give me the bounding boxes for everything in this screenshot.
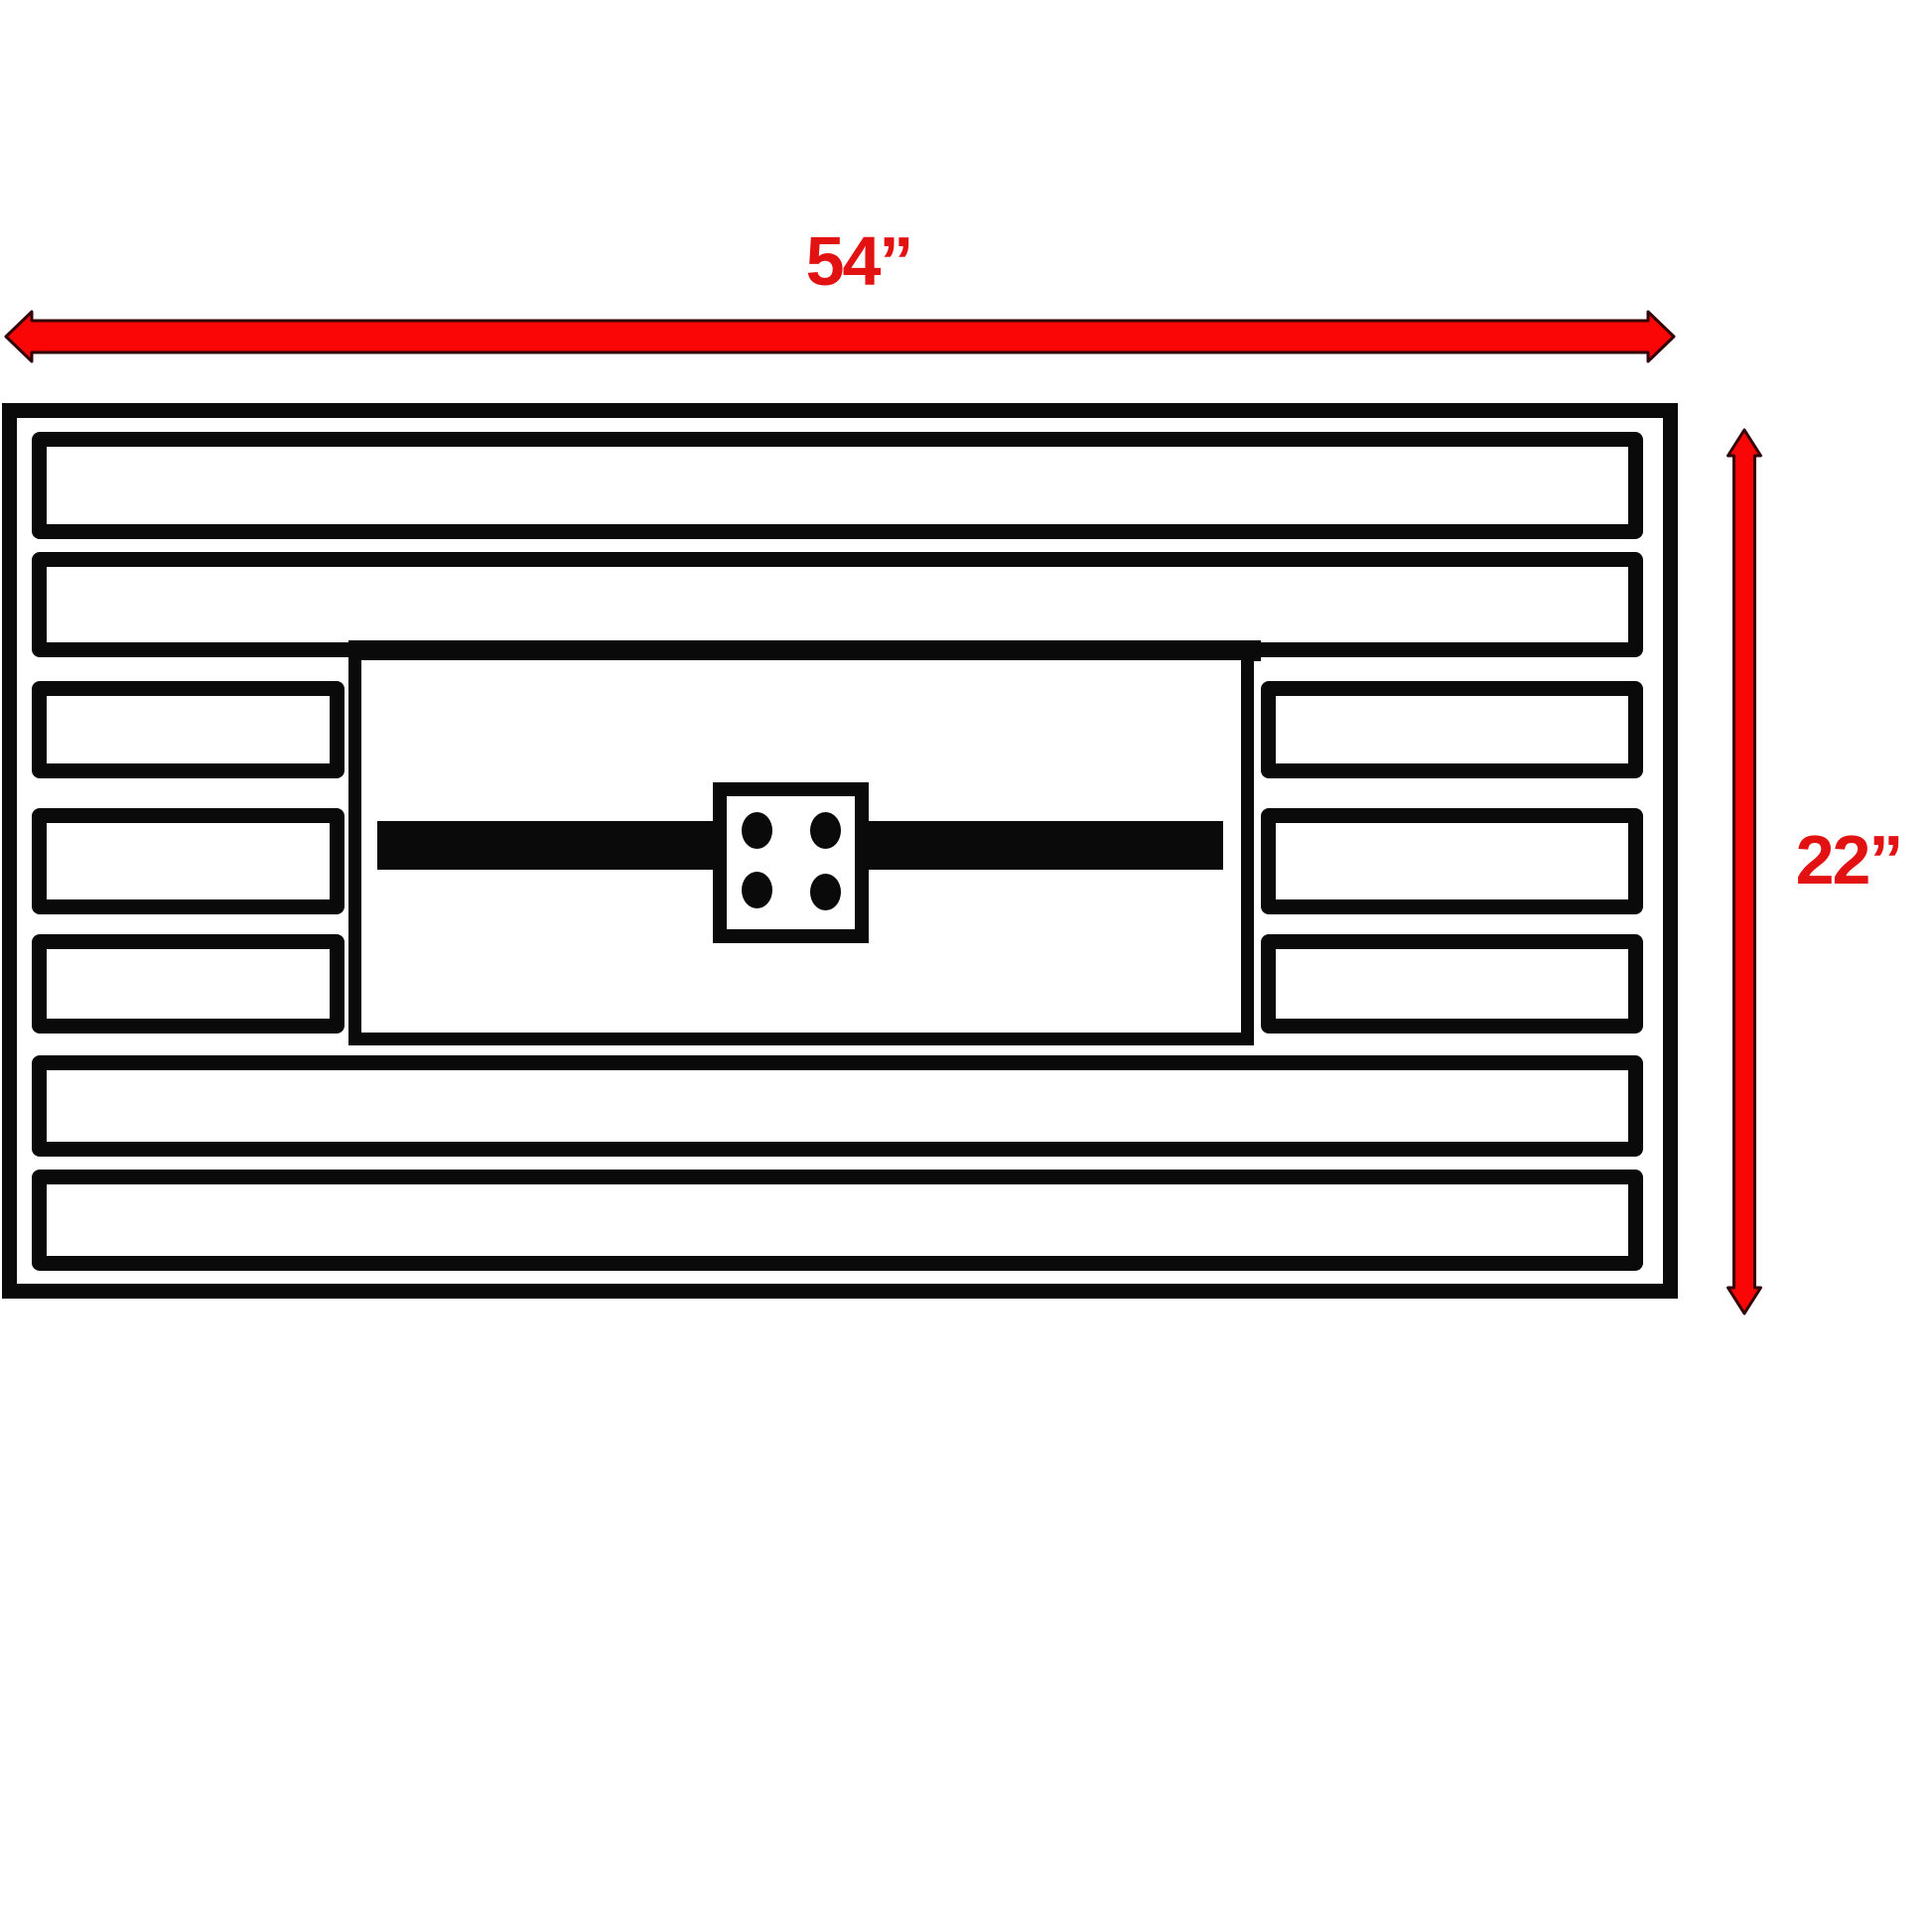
width-dimension-arrow	[0, 307, 1688, 368]
slat-row-1	[32, 432, 1643, 539]
diagram-canvas: 54” 22”	[0, 0, 1932, 1932]
height-dimension-arrow	[1719, 425, 1772, 1318]
slat-row-5-right	[1261, 934, 1643, 1034]
bolt-dot-bottom-right	[810, 874, 841, 910]
bolt-dot-top-left	[742, 812, 772, 849]
height-dimension-label: 22”	[1796, 825, 1902, 895]
width-dimension-label: 54”	[806, 226, 912, 296]
slat-row-7	[32, 1170, 1643, 1271]
bolt-dot-top-right	[810, 812, 841, 849]
slat-row-5-left	[32, 934, 345, 1034]
slat-row-4-left	[32, 808, 345, 914]
burner-mount-plate	[713, 782, 869, 943]
slat-row-6	[32, 1055, 1643, 1157]
slat-row-4-right	[1261, 808, 1643, 914]
bolt-dot-bottom-left	[742, 872, 772, 908]
burner-panel-top-bar	[348, 640, 1261, 661]
slat-row-3-left	[32, 681, 345, 778]
slat-row-3-right	[1261, 681, 1643, 778]
